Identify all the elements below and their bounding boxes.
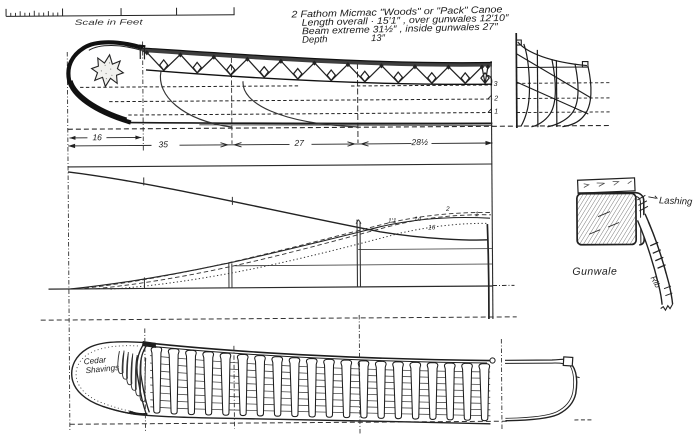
svg-text:35: 35	[158, 139, 168, 149]
svg-text:14: 14	[414, 216, 422, 223]
svg-text:Gunwale: Gunwale	[572, 266, 617, 278]
svg-text:13″: 13″	[371, 33, 386, 44]
svg-text:28½: 28½	[410, 137, 428, 147]
svg-text:16: 16	[428, 224, 436, 231]
svg-text:2: 2	[445, 206, 450, 213]
svg-text:Scale in Feet: Scale in Feet	[75, 17, 144, 26]
svg-text:Lashing: Lashing	[659, 195, 693, 208]
svg-text:Shavings: Shavings	[85, 363, 119, 375]
svg-text:16: 16	[92, 132, 102, 142]
svg-text:1′1: 1′1	[388, 218, 397, 225]
svg-text:2: 2	[493, 95, 498, 102]
svg-text:27: 27	[293, 138, 304, 148]
svg-text:3: 3	[494, 81, 498, 88]
svg-text:1: 1	[494, 108, 498, 115]
svg-text:1: 1	[475, 211, 479, 218]
svg-text:Depth: Depth	[302, 34, 328, 46]
